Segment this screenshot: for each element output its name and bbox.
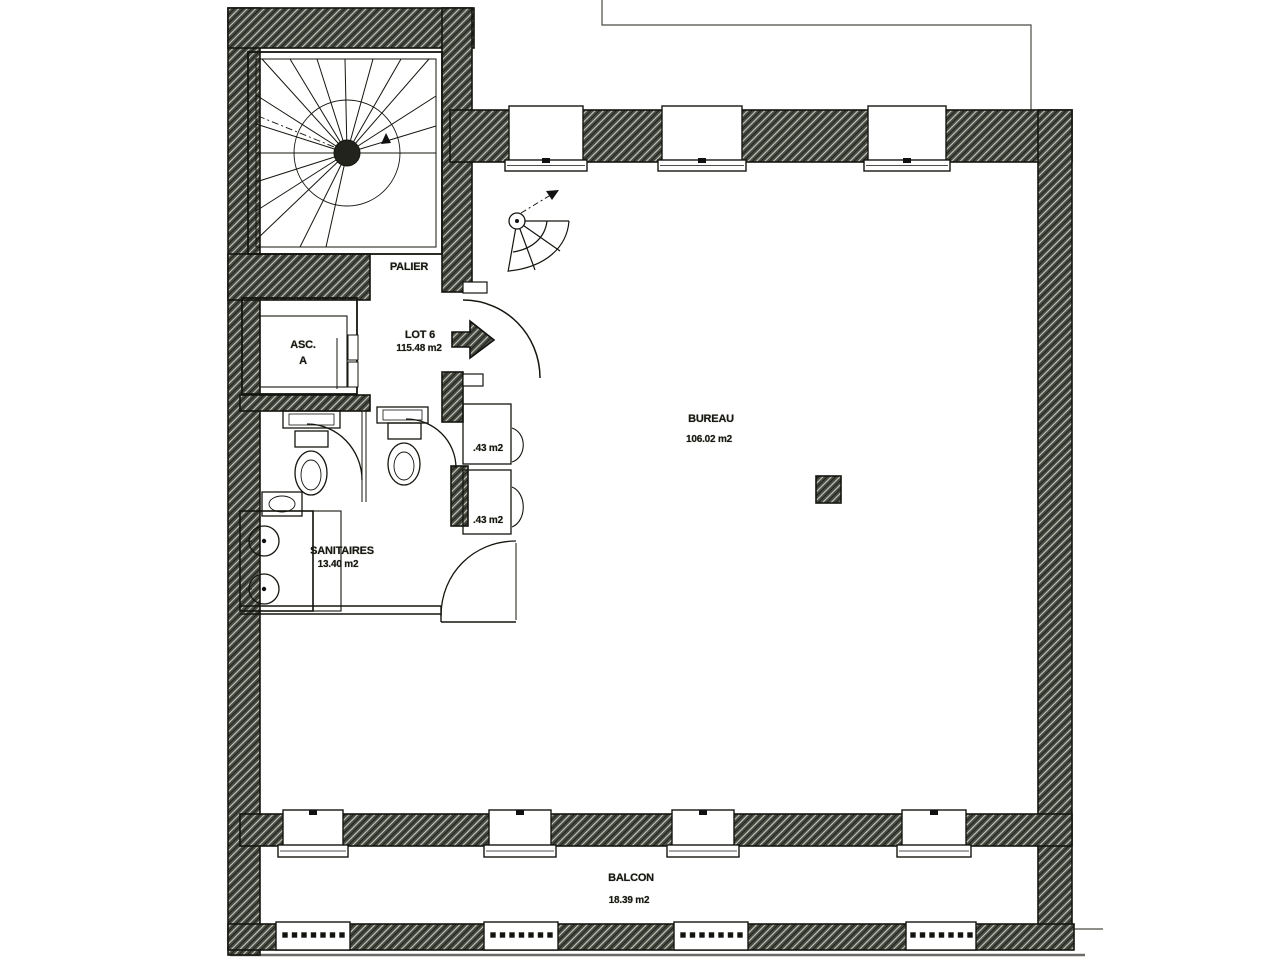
balustrade (674, 922, 748, 950)
sanitaires-label: SANITAIRES (310, 545, 374, 558)
bureau-label: BUREAU (688, 413, 734, 426)
ascenseur-letter: A (299, 355, 307, 368)
toilet (295, 431, 328, 495)
window (278, 810, 348, 857)
exterior-wall-right (1038, 110, 1072, 932)
entrance-arrow-icon (452, 321, 494, 358)
window (897, 810, 971, 857)
window (658, 106, 746, 171)
window (484, 810, 556, 857)
entry-wall-stub (442, 372, 463, 422)
floor-plan-drawing (0, 0, 1280, 960)
lot6-area: 115.48 m2 (396, 343, 441, 355)
duct-top-area: .43 m2 (473, 443, 503, 455)
balcon-area: 18.39 m2 (609, 895, 650, 907)
duct (463, 404, 511, 464)
facade-windows-top (505, 106, 950, 171)
floor-plan: PALIER ASC. A LOT 6 115.48 m2 BUREAU 106… (0, 0, 1280, 960)
balcon-label: BALCON (608, 872, 654, 885)
sanitaires-wall-top (240, 395, 370, 411)
bureau-area: 106.02 m2 (686, 434, 732, 446)
toilet (388, 423, 421, 485)
window (864, 106, 950, 171)
lot6-label: LOT 6 (405, 329, 435, 342)
window (667, 810, 739, 857)
duct-column (451, 466, 468, 526)
stairwell-wall-top (228, 8, 474, 48)
stairwell-wall-bottom (228, 254, 370, 300)
ascenseur-label: ASC. (290, 339, 315, 352)
bureau-column (816, 476, 841, 503)
palier-label: PALIER (390, 261, 428, 274)
balustrade (276, 922, 350, 950)
door-swing-arc (441, 541, 516, 616)
balustrade (484, 922, 558, 950)
window (505, 106, 587, 171)
elevator-door (348, 335, 358, 360)
basin (283, 411, 340, 428)
stair-direction-arrow-icon (381, 133, 391, 144)
spiral-staircase (248, 52, 442, 254)
exterior-wall-left (228, 8, 260, 955)
balustrade (906, 922, 976, 950)
sanitaires-area: 13.40 m2 (318, 559, 359, 571)
service-spiral-stair (508, 190, 569, 272)
up-arrow-icon (546, 190, 559, 200)
duct-bottom-area: .43 m2 (473, 515, 503, 527)
